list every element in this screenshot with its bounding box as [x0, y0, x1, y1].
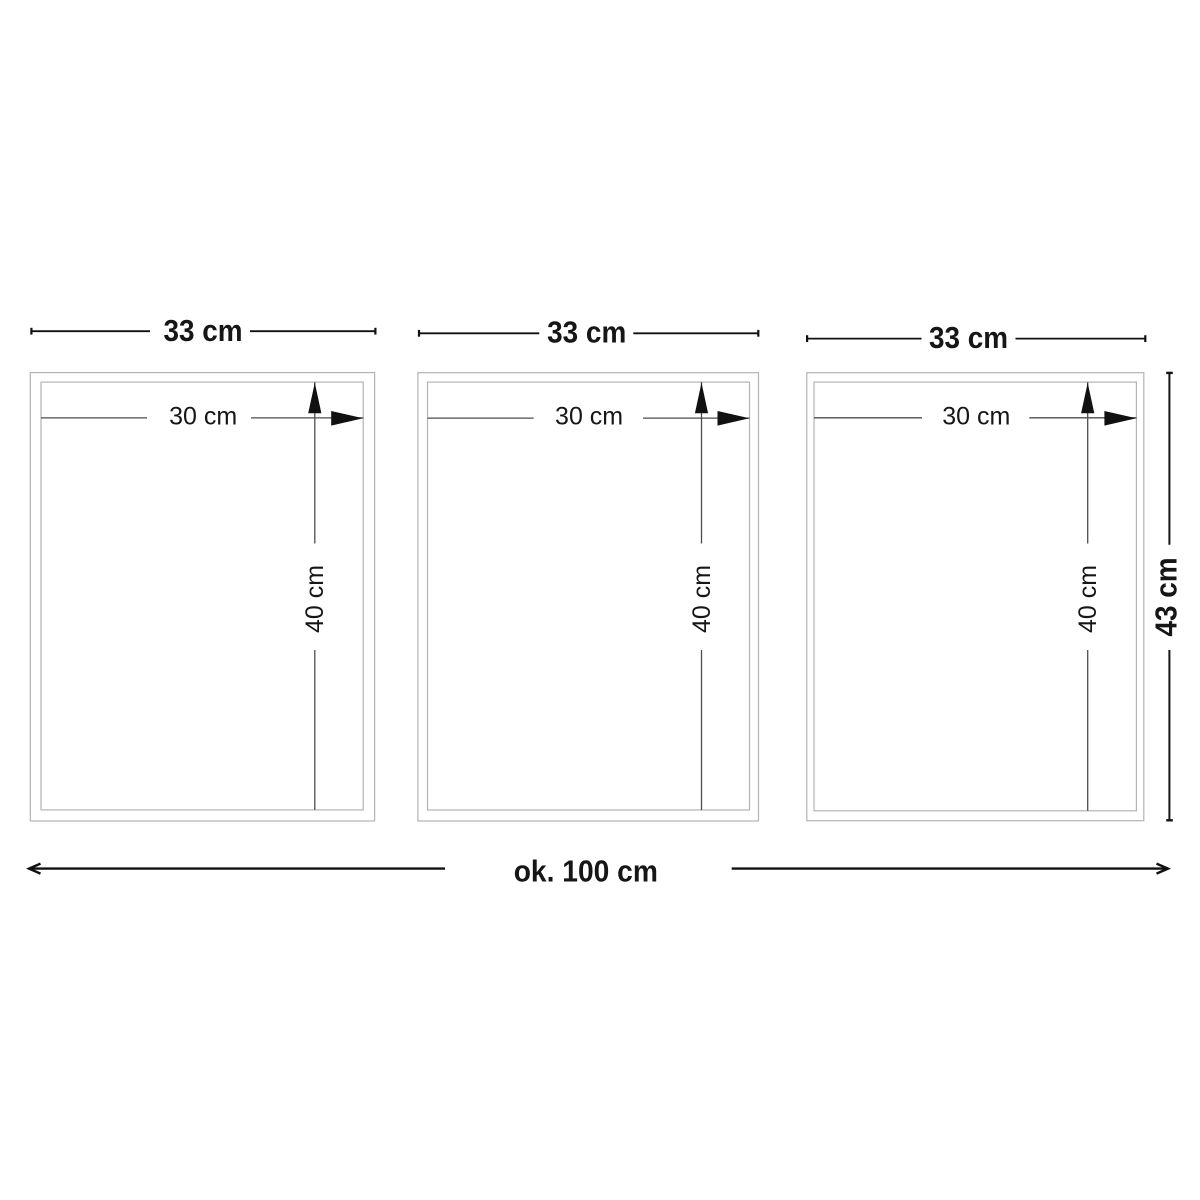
svg-text:33 cm: 33 cm: [929, 320, 1008, 355]
svg-text:33 cm: 33 cm: [547, 315, 626, 350]
svg-text:40 cm: 40 cm: [688, 565, 716, 633]
svg-text:30 cm: 30 cm: [169, 403, 237, 431]
svg-text:ok. 100 cm: ok. 100 cm: [514, 855, 658, 890]
svg-text:43 cm: 43 cm: [1149, 557, 1184, 636]
svg-text:30 cm: 30 cm: [555, 403, 623, 431]
svg-text:30 cm: 30 cm: [942, 403, 1010, 431]
svg-text:33 cm: 33 cm: [163, 313, 242, 348]
svg-text:40 cm: 40 cm: [301, 565, 329, 633]
svg-text:40 cm: 40 cm: [1074, 565, 1102, 633]
